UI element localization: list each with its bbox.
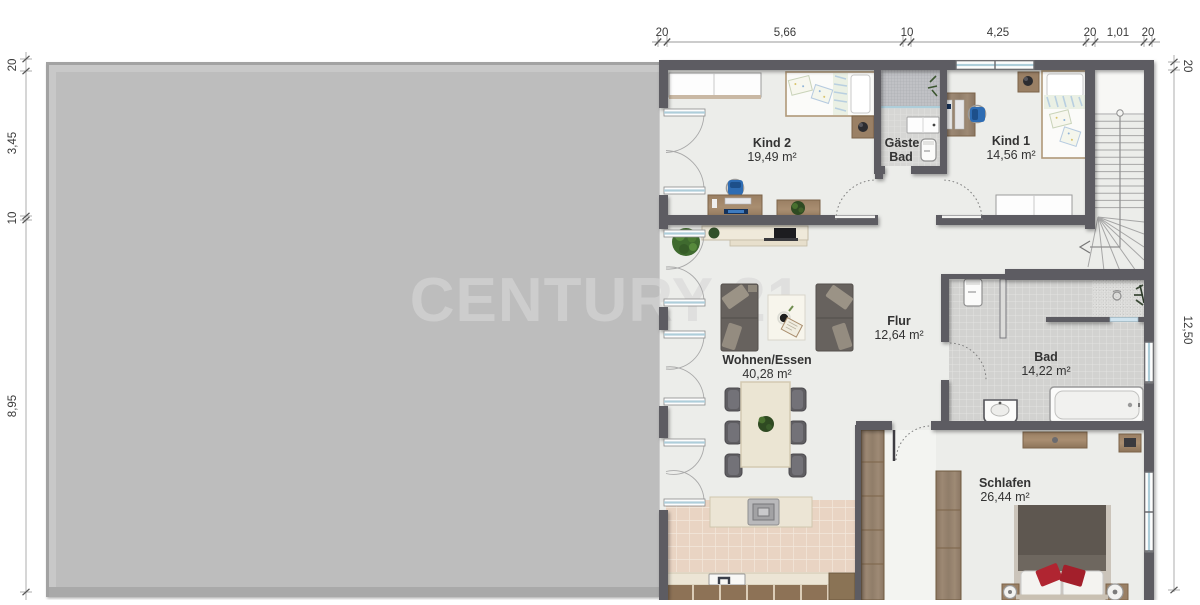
svg-text:12,64 m²: 12,64 m² [874,328,923,342]
svg-text:3,45: 3,45 [7,132,19,154]
svg-text:Gäste: Gäste [885,136,920,150]
svg-text:19,49 m²: 19,49 m² [747,150,796,164]
svg-text:10: 10 [901,27,914,39]
svg-text:Schlafen: Schlafen [979,476,1031,490]
svg-text:Wohnen/Essen: Wohnen/Essen [722,353,811,367]
svg-text:1,01: 1,01 [1107,27,1129,39]
svg-text:40,28 m²: 40,28 m² [742,367,791,381]
svg-text:Kind 1: Kind 1 [992,134,1030,148]
svg-text:Bad: Bad [1034,350,1058,364]
svg-text:10: 10 [7,212,19,225]
svg-text:14,56 m²: 14,56 m² [986,148,1035,162]
svg-text:26,44 m²: 26,44 m² [980,490,1029,504]
svg-text:5,66: 5,66 [774,27,796,39]
svg-text:20: 20 [1181,60,1193,73]
svg-text:20: 20 [1084,27,1097,39]
svg-text:Kind 2: Kind 2 [753,136,791,150]
svg-text:20: 20 [1142,27,1155,39]
svg-text:20: 20 [7,59,19,72]
svg-text:20: 20 [656,27,669,39]
svg-text:14,22 m²: 14,22 m² [1021,364,1070,378]
svg-text:8,95: 8,95 [7,395,19,417]
svg-text:Flur: Flur [887,314,911,328]
svg-text:Bad: Bad [889,150,913,164]
svg-text:4,25: 4,25 [987,27,1009,39]
svg-text:12,50: 12,50 [1181,316,1193,345]
